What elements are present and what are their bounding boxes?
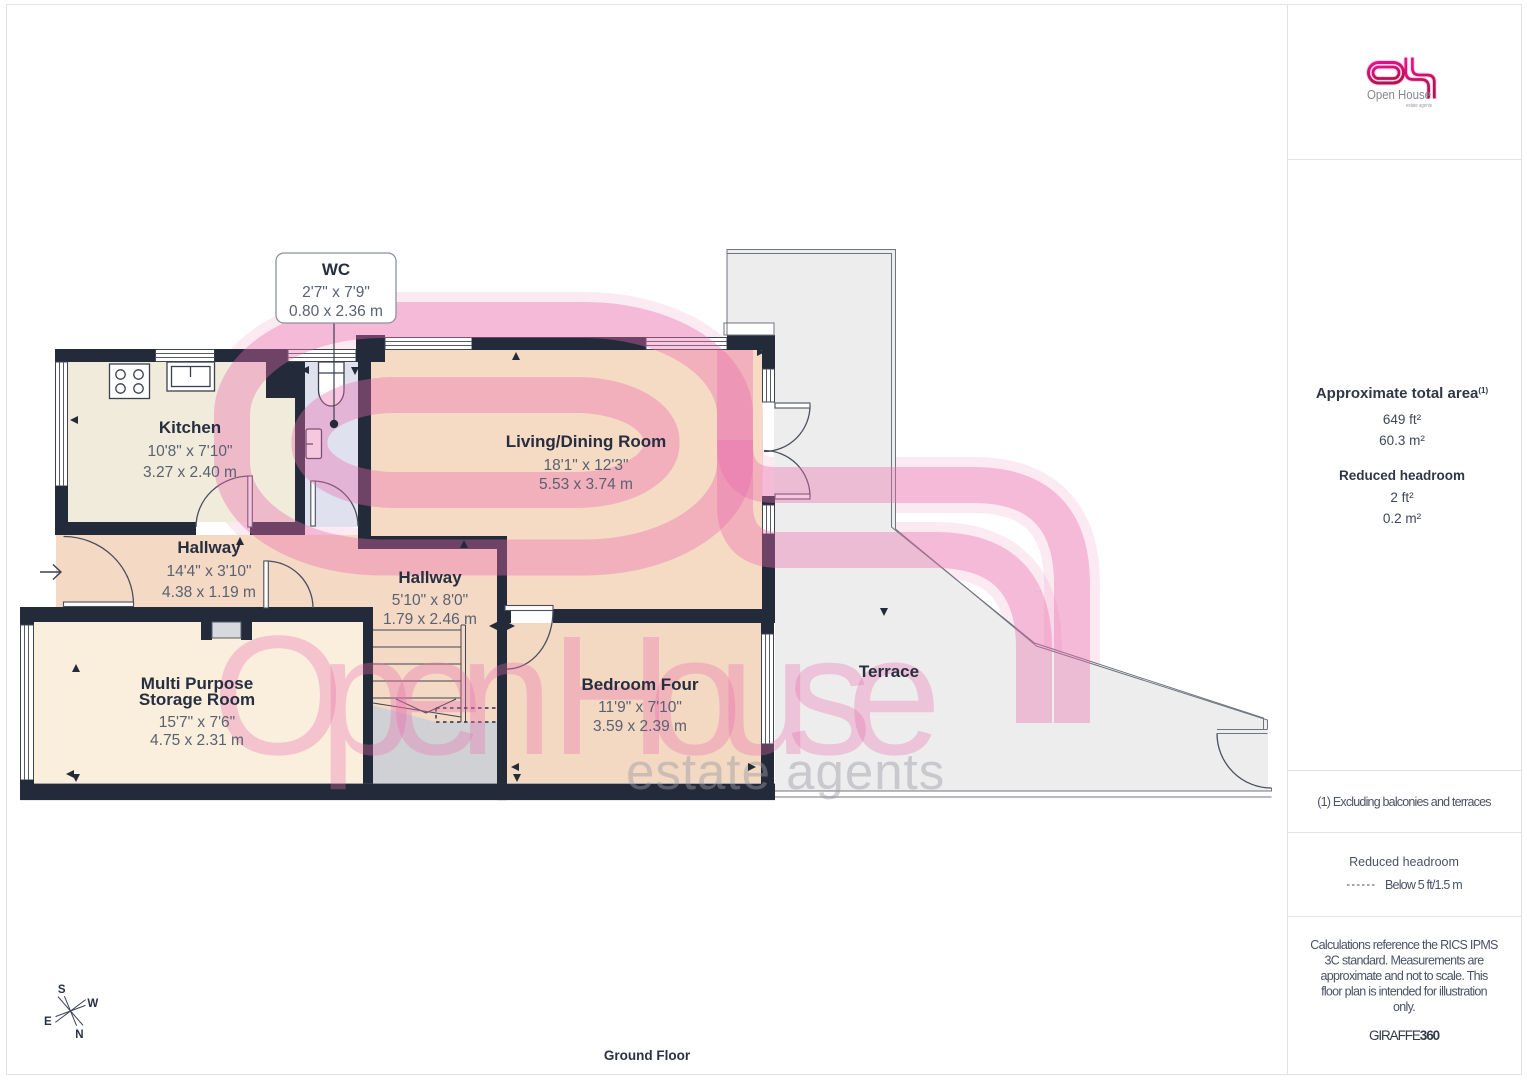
svg-text:floor plan is intended for ill: floor plan is intended for illustration [1321, 985, 1488, 999]
svg-text:Hallway: Hallway [398, 568, 462, 587]
svg-text:(1) Excluding balconies and te: (1) Excluding balconies and terraces [1317, 795, 1491, 809]
svg-text:W: W [87, 998, 98, 1010]
svg-text:N: N [75, 1029, 83, 1041]
svg-text:11'9" x 7'10": 11'9" x 7'10" [598, 699, 682, 716]
svg-text:18'1" x 12'3": 18'1" x 12'3" [543, 457, 628, 474]
svg-text:Ground Floor: Ground Floor [604, 1048, 691, 1063]
svg-text:2 ft²: 2 ft² [1390, 490, 1414, 505]
svg-text:E: E [44, 1016, 52, 1028]
svg-text:4.75 x 2.31 m: 4.75 x 2.31 m [150, 732, 244, 749]
svg-text:WC: WC [322, 260, 350, 279]
svg-text:3.27 x 2.40 m: 3.27 x 2.40 m [143, 464, 237, 481]
svg-text:0.2 m²: 0.2 m² [1383, 511, 1422, 526]
svg-text:Calculations reference the RIC: Calculations reference the RICS IPMS [1310, 938, 1498, 952]
svg-text:approximate and not to scale.: approximate and not to scale. This [1320, 969, 1488, 983]
svg-text:Bedroom Four: Bedroom Four [581, 675, 698, 694]
svg-text:5.53 x 3.74 m: 5.53 x 3.74 m [539, 476, 633, 493]
svg-text:estate agents: estate agents [1406, 103, 1432, 109]
svg-text:Hallway: Hallway [177, 538, 241, 557]
svg-text:Open House: Open House [1367, 87, 1431, 102]
svg-text:GIRAFFE360: GIRAFFE360 [1369, 1028, 1440, 1043]
svg-text:Reduced headroom: Reduced headroom [1349, 855, 1459, 869]
svg-text:Storage Room: Storage Room [139, 690, 255, 709]
svg-text:S: S [58, 984, 66, 996]
svg-text:2'7" x 7'9": 2'7" x 7'9" [302, 284, 370, 301]
svg-text:estate agents: estate agents [626, 743, 945, 800]
svg-text:15'7" x 7'6": 15'7" x 7'6" [159, 714, 235, 731]
svg-text:649 ft²: 649 ft² [1383, 412, 1422, 427]
svg-text:Reduced headroom: Reduced headroom [1339, 468, 1465, 483]
svg-text:Living/Dining Room: Living/Dining Room [506, 432, 667, 451]
svg-text:Below 5 ft/1.5 m: Below 5 ft/1.5 m [1385, 878, 1462, 892]
svg-text:3C standard. Measurements are: 3C standard. Measurements are [1325, 954, 1485, 968]
svg-text:60.3 m²: 60.3 m² [1379, 433, 1425, 448]
svg-text:10'8" x 7'10": 10'8" x 7'10" [147, 443, 232, 460]
svg-text:5'10" x 8'0": 5'10" x 8'0" [392, 592, 468, 609]
svg-text:Terrace: Terrace [859, 662, 919, 681]
svg-text:0.80 x 2.36 m: 0.80 x 2.36 m [289, 303, 383, 320]
svg-text:only.: only. [1393, 1000, 1415, 1014]
svg-text:4.38 x 1.19 m: 4.38 x 1.19 m [162, 584, 256, 601]
svg-text:3.59 x 2.39 m: 3.59 x 2.39 m [593, 718, 687, 735]
svg-text:1.79 x 2.46 m: 1.79 x 2.46 m [383, 611, 477, 628]
svg-text:14'4" x 3'10": 14'4" x 3'10" [166, 563, 251, 580]
svg-text:Kitchen: Kitchen [159, 418, 221, 437]
svg-text:Approximate total area(1): Approximate total area(1) [1316, 385, 1489, 402]
